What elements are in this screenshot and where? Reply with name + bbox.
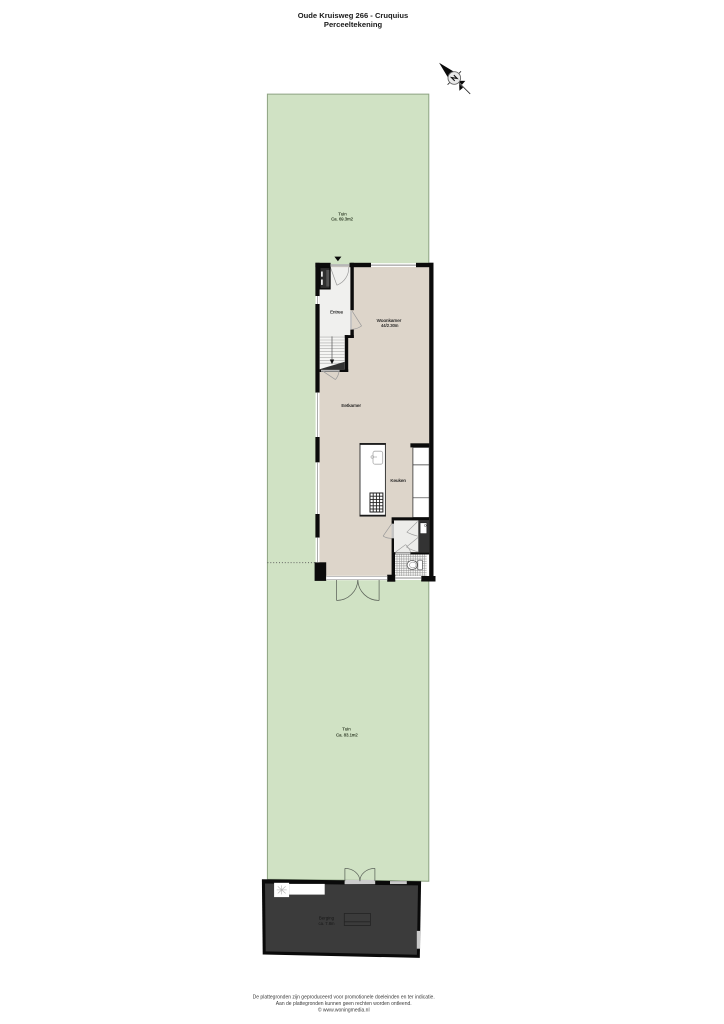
svg-text:Tuin: Tuin (342, 727, 351, 732)
svg-text:Aan de plattegronden kunnen ge: Aan de plattegronden kunnen geen rechten… (276, 1001, 412, 1007)
svg-text:Berging: Berging (319, 915, 335, 920)
svg-text:Ca. 83.1m2: Ca. 83.1m2 (336, 733, 358, 738)
svg-text:De plattegronden zijn geproduc: De plattegronden zijn geproduceerd voor … (253, 995, 435, 1001)
svg-text:Woonkamer: Woonkamer (377, 318, 402, 323)
svg-text:Entree: Entree (330, 310, 343, 315)
svg-text:Eetkamer: Eetkamer (341, 403, 361, 408)
svg-text:© www.woningmedia.nl: © www.woningmedia.nl (318, 1007, 370, 1014)
svg-text:ca. 7.8m: ca. 7.8m (318, 921, 335, 926)
svg-text:Keuken: Keuken (390, 478, 406, 483)
svg-text:Ca. 69.3m2: Ca. 69.3m2 (331, 217, 353, 222)
svg-text:Perceeltekening: Perceeltekening (324, 20, 383, 29)
svg-text:Oude Kruisweg 266 - Cruquius: Oude Kruisweg 266 - Cruquius (298, 11, 409, 20)
svg-text:44/2.30m: 44/2.30m (381, 323, 399, 328)
